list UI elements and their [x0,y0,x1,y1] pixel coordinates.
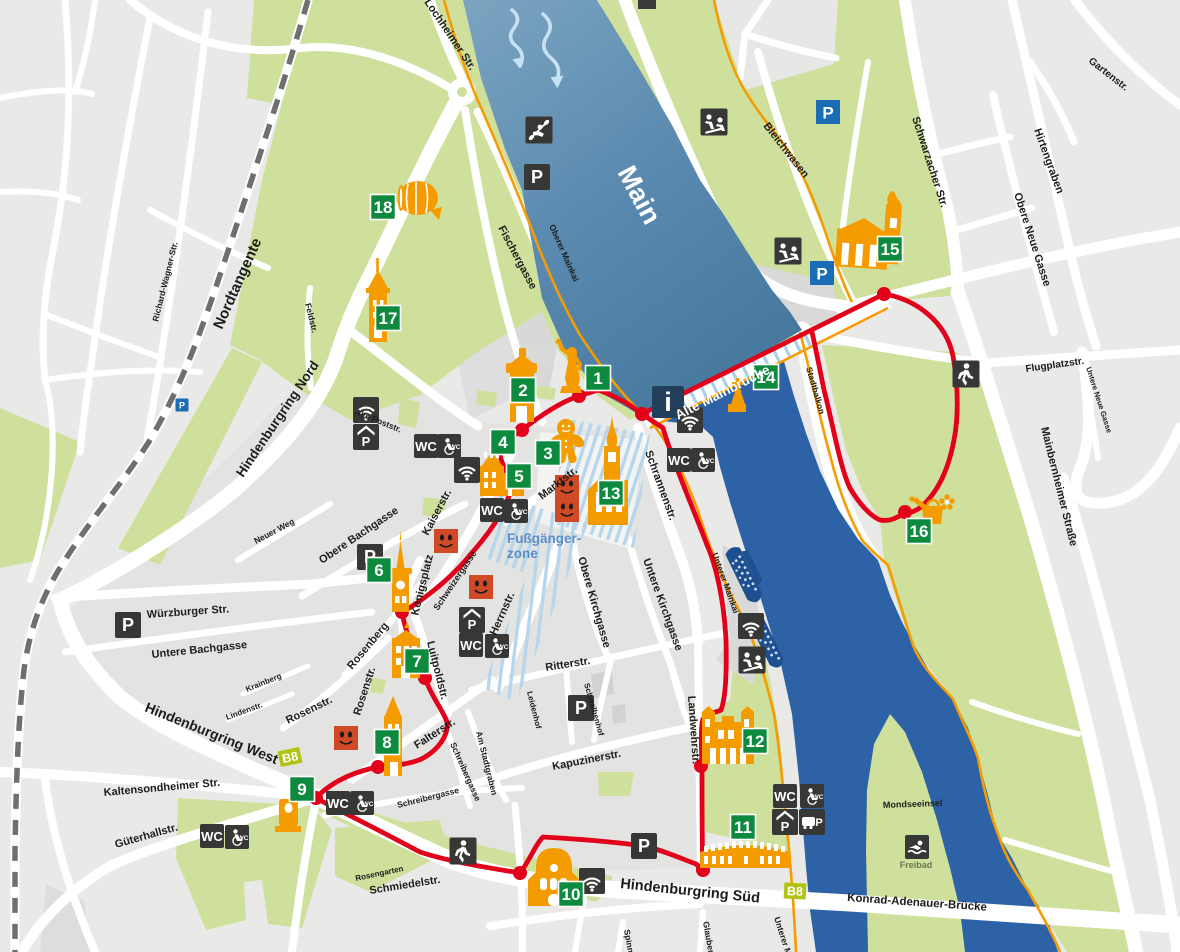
svg-text:P: P [822,103,833,122]
svg-text:WC: WC [238,835,249,842]
svg-text:P: P [781,819,790,834]
svg-text:P: P [575,698,587,718]
svg-text:18: 18 [374,198,393,217]
svg-text:13: 13 [602,484,621,503]
svg-text:Freibad: Freibad [900,860,933,870]
svg-text:WC: WC [460,638,482,653]
svg-text:B8: B8 [787,884,804,899]
svg-text:WC: WC [813,794,824,801]
svg-text:WC: WC [774,789,796,804]
svg-text:12: 12 [746,732,765,751]
svg-text:WC: WC [481,503,503,518]
svg-text:7: 7 [412,652,421,671]
svg-text:WC: WC [517,509,528,516]
svg-text:WC: WC [668,453,690,468]
svg-text:P: P [815,817,822,829]
svg-text:P: P [122,615,134,635]
svg-text:i: i [664,387,672,417]
svg-text:WC: WC [201,829,223,844]
svg-text:4: 4 [498,433,508,452]
svg-text:P: P [816,264,827,283]
svg-text:P: P [362,434,371,449]
svg-text:WC: WC [327,796,349,811]
svg-text:15: 15 [881,240,900,259]
svg-text:2: 2 [518,381,527,400]
svg-text:5: 5 [514,467,523,486]
svg-text:WC: WC [450,444,461,451]
svg-text:16: 16 [910,522,929,541]
svg-text:Mondseeinsel: Mondseeinsel [883,798,943,810]
svg-text:1: 1 [593,369,602,388]
svg-text:WC: WC [704,458,715,465]
svg-text:11: 11 [734,818,752,837]
svg-text:9: 9 [297,780,306,799]
svg-text:10: 10 [562,885,581,904]
svg-text:17: 17 [379,309,398,328]
svg-text:P: P [638,836,650,856]
svg-text:WC: WC [498,644,509,651]
svg-text:Fußgänger-: Fußgänger- [507,531,581,546]
svg-text:zone: zone [507,546,538,561]
svg-text:P: P [468,617,477,632]
svg-text:WC: WC [415,439,437,454]
svg-text:P: P [531,167,543,187]
svg-text:P: P [179,401,185,411]
svg-text:8: 8 [382,733,391,752]
svg-text:6: 6 [374,561,383,580]
svg-text:3: 3 [543,444,552,463]
svg-text:WC: WC [363,801,374,808]
